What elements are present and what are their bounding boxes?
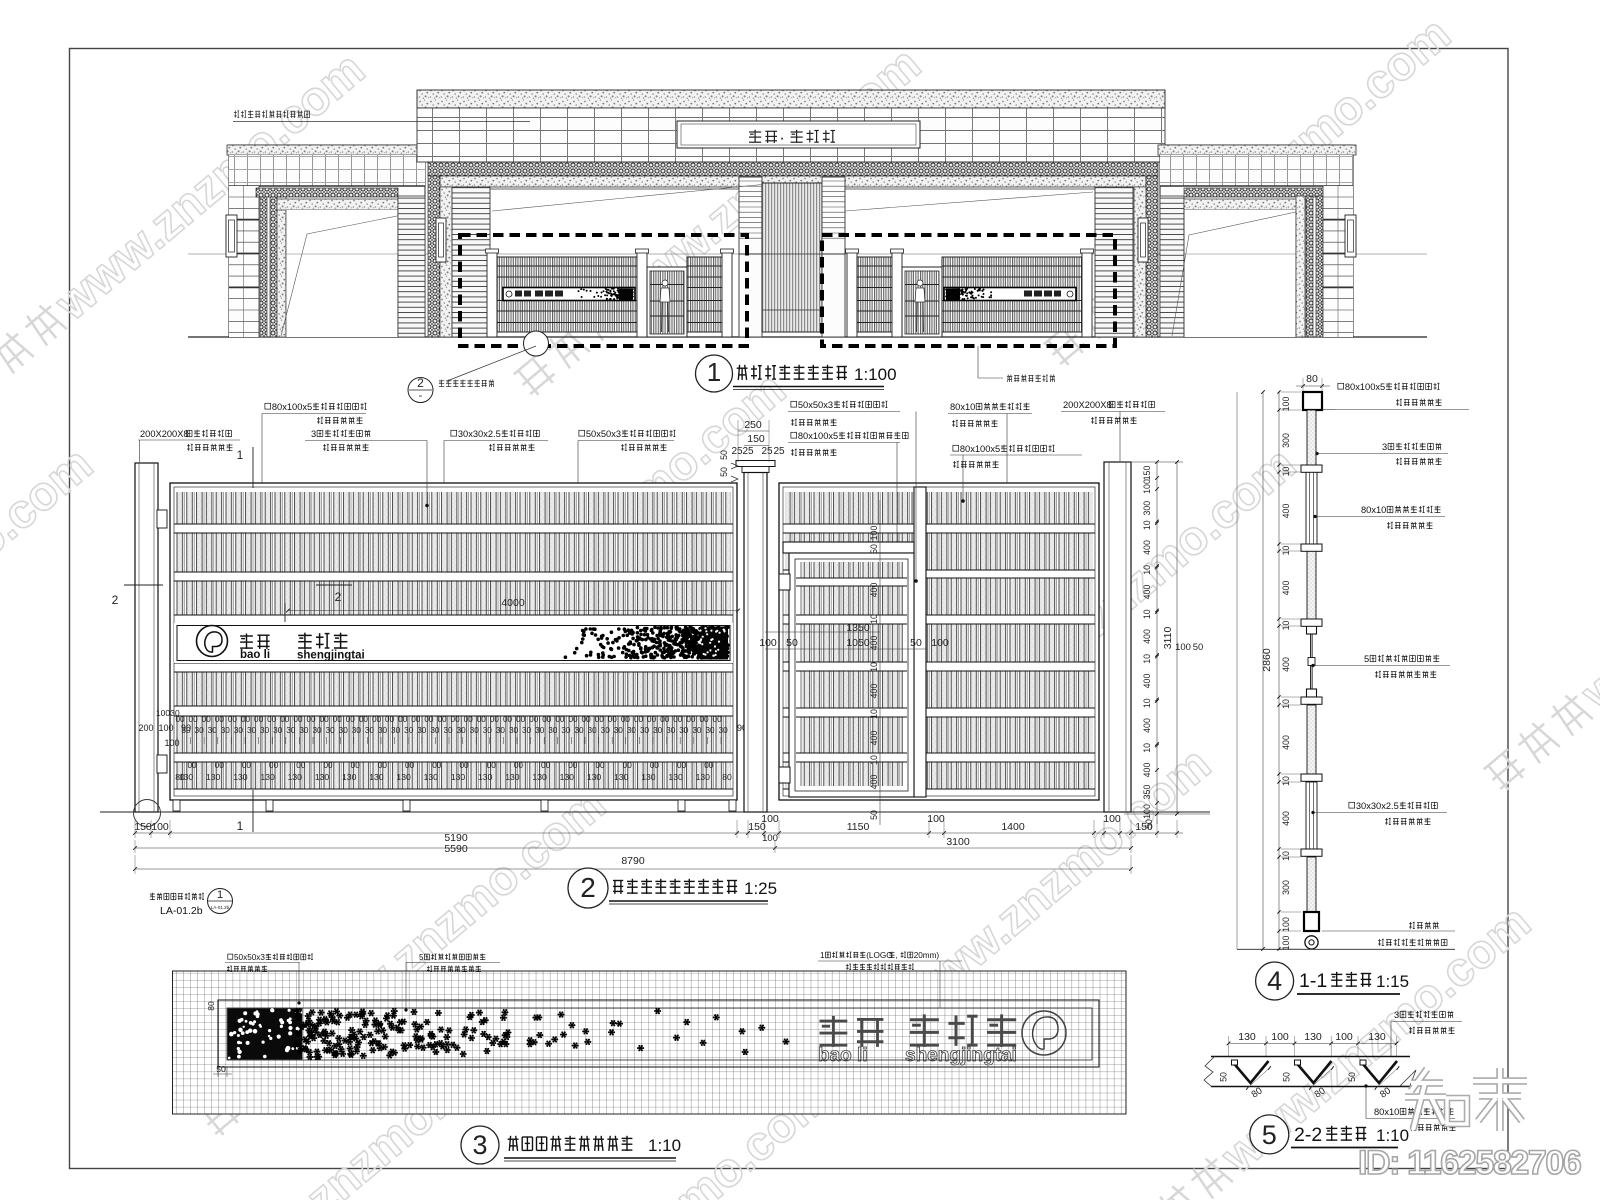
svg-text:00: 00 bbox=[280, 715, 290, 724]
svg-text:10: 10 bbox=[869, 755, 879, 765]
svg-text:30: 30 bbox=[653, 726, 663, 735]
svg-text:00: 00 bbox=[503, 715, 513, 724]
svg-text:(LOGO: (LOGO bbox=[866, 951, 892, 960]
svg-text:1: 1 bbox=[237, 448, 244, 462]
svg-text:30: 30 bbox=[365, 726, 375, 735]
svg-text:100: 100 bbox=[869, 526, 879, 541]
svg-text:00: 00 bbox=[595, 715, 605, 724]
svg-text:80: 80 bbox=[206, 1001, 216, 1011]
svg-text:10: 10 bbox=[1142, 520, 1152, 530]
svg-text:00: 00 bbox=[704, 761, 714, 770]
svg-text:00: 00 bbox=[568, 761, 578, 770]
svg-text:100: 100 bbox=[158, 723, 173, 733]
svg-text:30: 30 bbox=[221, 726, 231, 735]
svg-text:00: 00 bbox=[378, 761, 388, 770]
svg-text:25: 25 bbox=[773, 446, 785, 457]
svg-text:2: 2 bbox=[580, 872, 596, 903]
svg-text:00: 00 bbox=[516, 715, 526, 724]
svg-text:00: 00 bbox=[451, 715, 461, 724]
svg-text:00: 00 bbox=[542, 715, 552, 724]
svg-text:30: 30 bbox=[286, 726, 296, 735]
svg-text:30: 30 bbox=[208, 726, 218, 735]
svg-text:00: 00 bbox=[359, 715, 369, 724]
svg-text:130: 130 bbox=[478, 772, 493, 782]
svg-text:shengjingtai: shengjingtai bbox=[905, 1045, 1017, 1066]
svg-text:130: 130 bbox=[206, 772, 221, 782]
svg-text:130: 130 bbox=[396, 772, 411, 782]
svg-text:00: 00 bbox=[320, 715, 330, 724]
svg-text:30: 30 bbox=[614, 726, 624, 735]
svg-text:300: 300 bbox=[1281, 433, 1291, 448]
svg-text:5: 5 bbox=[419, 953, 424, 962]
svg-text:00: 00 bbox=[254, 715, 264, 724]
svg-text:bao li: bao li bbox=[240, 649, 270, 661]
svg-text:100: 100 bbox=[1175, 642, 1191, 653]
svg-text:130: 130 bbox=[369, 772, 384, 782]
svg-text:30: 30 bbox=[443, 726, 453, 735]
svg-text:00: 00 bbox=[267, 715, 277, 724]
svg-text:130: 130 bbox=[342, 772, 357, 782]
svg-text:350: 350 bbox=[1142, 785, 1152, 800]
svg-text:30: 30 bbox=[417, 726, 427, 735]
svg-text:30: 30 bbox=[574, 726, 584, 735]
svg-text:100: 100 bbox=[1103, 813, 1121, 825]
svg-text:00: 00 bbox=[582, 715, 592, 724]
svg-text:00: 00 bbox=[215, 761, 225, 770]
svg-text:00: 00 bbox=[459, 761, 469, 770]
svg-text:130: 130 bbox=[696, 772, 711, 782]
svg-text:30: 30 bbox=[627, 726, 637, 735]
svg-text:1150: 1150 bbox=[847, 821, 870, 833]
svg-text:100: 100 bbox=[761, 813, 779, 825]
svg-text:00: 00 bbox=[464, 715, 474, 724]
svg-text:30: 30 bbox=[679, 726, 689, 735]
svg-text:00: 00 bbox=[424, 715, 434, 724]
svg-text:1: 1 bbox=[237, 819, 244, 833]
svg-text:50: 50 bbox=[216, 1064, 226, 1074]
svg-text:50: 50 bbox=[719, 450, 729, 460]
svg-text:80: 80 bbox=[175, 772, 185, 782]
svg-text:400: 400 bbox=[1281, 735, 1291, 750]
svg-text:150: 150 bbox=[134, 821, 152, 833]
svg-text:50x50x3: 50x50x3 bbox=[234, 953, 265, 962]
svg-text:2: 2 bbox=[417, 376, 424, 390]
svg-text:1: 1 bbox=[217, 889, 223, 901]
svg-text:150: 150 bbox=[1142, 466, 1152, 481]
svg-text:50x50x3: 50x50x3 bbox=[586, 429, 621, 439]
svg-text:1: 1 bbox=[820, 951, 825, 960]
svg-text:80x100x5: 80x100x5 bbox=[1345, 382, 1385, 392]
svg-text:00: 00 bbox=[405, 761, 415, 770]
svg-text:400: 400 bbox=[869, 583, 879, 598]
svg-text:30: 30 bbox=[588, 726, 598, 735]
svg-text:200X200X8: 200X200X8 bbox=[140, 429, 189, 439]
svg-text:400: 400 bbox=[1281, 581, 1291, 596]
svg-text:30: 30 bbox=[483, 726, 493, 735]
svg-text:80x100x5: 80x100x5 bbox=[272, 402, 312, 412]
svg-text:30: 30 bbox=[170, 708, 180, 718]
svg-text:80x100x5: 80x100x5 bbox=[960, 444, 1000, 454]
svg-text:30: 30 bbox=[496, 726, 506, 735]
svg-text:130: 130 bbox=[505, 772, 520, 782]
svg-text:100: 100 bbox=[931, 637, 949, 649]
svg-text:3: 3 bbox=[1382, 442, 1387, 452]
svg-text:10: 10 bbox=[1281, 467, 1291, 477]
svg-text:10: 10 bbox=[869, 709, 879, 719]
svg-text:130: 130 bbox=[614, 772, 629, 782]
svg-text:30: 30 bbox=[404, 726, 414, 735]
svg-text:00: 00 bbox=[555, 715, 565, 724]
svg-text:400: 400 bbox=[1142, 718, 1152, 733]
svg-text:30: 30 bbox=[548, 726, 558, 735]
svg-text:80x10: 80x10 bbox=[950, 402, 975, 412]
svg-text:00: 00 bbox=[487, 761, 497, 770]
svg-text:100: 100 bbox=[927, 813, 945, 825]
svg-text:130: 130 bbox=[288, 772, 303, 782]
svg-text:25: 25 bbox=[742, 446, 754, 457]
svg-text:50: 50 bbox=[786, 637, 798, 649]
svg-text:30: 30 bbox=[378, 726, 388, 735]
svg-text:00: 00 bbox=[187, 761, 197, 770]
svg-text:·: · bbox=[779, 128, 785, 147]
svg-text:1: 1 bbox=[707, 357, 721, 387]
svg-text:30: 30 bbox=[640, 726, 650, 735]
svg-text:00: 00 bbox=[242, 761, 252, 770]
svg-text:30: 30 bbox=[234, 726, 244, 735]
svg-text:8790: 8790 bbox=[621, 855, 645, 867]
svg-text:400: 400 bbox=[869, 731, 879, 746]
svg-text:00: 00 bbox=[351, 761, 361, 770]
svg-text:30: 30 bbox=[299, 726, 309, 735]
svg-text:400: 400 bbox=[1142, 540, 1152, 555]
svg-text:400: 400 bbox=[1142, 629, 1152, 644]
svg-text:400: 400 bbox=[869, 684, 879, 699]
svg-text:130: 130 bbox=[233, 772, 248, 782]
svg-text:00: 00 bbox=[647, 715, 657, 724]
svg-text:30: 30 bbox=[247, 726, 257, 735]
svg-text:30: 30 bbox=[522, 726, 532, 735]
svg-text:130: 130 bbox=[260, 772, 275, 782]
svg-text:30: 30 bbox=[561, 726, 571, 735]
svg-text:10: 10 bbox=[1142, 565, 1152, 575]
svg-text:10: 10 bbox=[1142, 609, 1152, 619]
svg-text:00: 00 bbox=[595, 761, 605, 770]
svg-text:10: 10 bbox=[1281, 776, 1291, 786]
svg-text:50: 50 bbox=[1193, 642, 1204, 653]
svg-text:30: 30 bbox=[705, 726, 715, 735]
svg-text:100: 100 bbox=[1281, 917, 1291, 932]
svg-text:150: 150 bbox=[1135, 821, 1153, 833]
svg-text:00: 00 bbox=[296, 761, 306, 770]
svg-text:00: 00 bbox=[241, 715, 251, 724]
svg-text:400: 400 bbox=[1142, 763, 1152, 778]
svg-text:400: 400 bbox=[1142, 674, 1152, 689]
svg-text:00: 00 bbox=[623, 761, 633, 770]
svg-text:300: 300 bbox=[1281, 880, 1291, 895]
svg-text:,: , bbox=[895, 951, 897, 960]
svg-text:130: 130 bbox=[424, 772, 439, 782]
svg-text:100: 100 bbox=[1142, 479, 1152, 494]
svg-text:1400: 1400 bbox=[1001, 821, 1025, 833]
svg-text:10: 10 bbox=[869, 614, 879, 624]
svg-text:00: 00 bbox=[202, 715, 212, 724]
svg-text:30: 30 bbox=[719, 726, 729, 735]
svg-text:shengjingtai: shengjingtai bbox=[297, 650, 365, 662]
svg-text:30: 30 bbox=[601, 726, 611, 735]
svg-text:50: 50 bbox=[869, 810, 879, 820]
svg-text:10: 10 bbox=[1142, 743, 1152, 753]
svg-text:400: 400 bbox=[869, 636, 879, 651]
svg-text:00: 00 bbox=[608, 715, 618, 724]
svg-text:100: 100 bbox=[156, 708, 170, 718]
svg-text:3100: 3100 bbox=[946, 836, 970, 848]
svg-text:80: 80 bbox=[1306, 373, 1318, 385]
svg-text:100: 100 bbox=[1281, 397, 1291, 412]
svg-text:10: 10 bbox=[1281, 699, 1291, 709]
svg-text:90: 90 bbox=[181, 723, 191, 733]
svg-text:10: 10 bbox=[1281, 851, 1291, 861]
svg-text:00: 00 bbox=[398, 715, 408, 724]
svg-text:30: 30 bbox=[457, 726, 467, 735]
svg-text:130: 130 bbox=[560, 772, 575, 782]
svg-text:10: 10 bbox=[1142, 654, 1152, 664]
svg-text:130: 130 bbox=[532, 772, 547, 782]
svg-text:400: 400 bbox=[1142, 585, 1152, 600]
svg-text:10: 10 bbox=[869, 662, 879, 672]
svg-text:130: 130 bbox=[668, 772, 683, 782]
svg-text:3: 3 bbox=[472, 1130, 487, 1160]
svg-text:30: 30 bbox=[509, 726, 519, 735]
svg-text:10: 10 bbox=[1281, 546, 1291, 556]
svg-text:1350: 1350 bbox=[846, 622, 870, 634]
svg-text:20mm): 20mm) bbox=[914, 951, 940, 960]
svg-text:100: 100 bbox=[1281, 936, 1291, 951]
svg-text:50: 50 bbox=[869, 544, 879, 554]
svg-text:130: 130 bbox=[315, 772, 330, 782]
svg-text:30: 30 bbox=[273, 726, 283, 735]
svg-text:400: 400 bbox=[1281, 504, 1291, 519]
svg-text:3110: 3110 bbox=[1162, 627, 1174, 650]
svg-text:1050: 1050 bbox=[846, 637, 870, 649]
svg-text:bao li: bao li bbox=[818, 1045, 868, 1066]
svg-text:80x10: 80x10 bbox=[1361, 505, 1386, 515]
svg-text:2860: 2860 bbox=[1261, 648, 1273, 672]
svg-text:4000: 4000 bbox=[501, 597, 525, 609]
svg-text:00: 00 bbox=[437, 715, 447, 724]
svg-text:30: 30 bbox=[666, 726, 676, 735]
svg-text:5: 5 bbox=[1364, 654, 1369, 664]
svg-text:00: 00 bbox=[650, 761, 660, 770]
svg-text:00: 00 bbox=[385, 715, 395, 724]
svg-text:100: 100 bbox=[151, 821, 169, 833]
svg-text:100: 100 bbox=[164, 738, 179, 748]
svg-text:400: 400 bbox=[1281, 657, 1291, 672]
svg-text:30: 30 bbox=[535, 726, 545, 735]
svg-text:00: 00 bbox=[490, 715, 500, 724]
svg-text:00: 00 bbox=[306, 715, 316, 724]
svg-text:00: 00 bbox=[621, 715, 631, 724]
svg-text:30: 30 bbox=[260, 726, 270, 735]
svg-text:200X200X8: 200X200X8 bbox=[1063, 400, 1112, 410]
svg-text:00: 00 bbox=[699, 715, 709, 724]
svg-text:30: 30 bbox=[195, 726, 205, 735]
svg-text:130: 130 bbox=[451, 772, 466, 782]
svg-text:400: 400 bbox=[869, 775, 879, 790]
svg-text:30x30x2.5: 30x30x2.5 bbox=[1356, 801, 1399, 811]
svg-text:30: 30 bbox=[470, 726, 480, 735]
svg-text:2: 2 bbox=[335, 590, 342, 604]
svg-text:50: 50 bbox=[719, 467, 729, 477]
svg-text:30: 30 bbox=[692, 726, 702, 735]
svg-text:400: 400 bbox=[1281, 811, 1291, 826]
svg-text:LA-01.2b: LA-01.2b bbox=[211, 905, 230, 910]
svg-text:100: 100 bbox=[762, 833, 778, 844]
svg-text:00: 00 bbox=[568, 715, 578, 724]
svg-text:130: 130 bbox=[641, 772, 656, 782]
svg-text:50x50x3: 50x50x3 bbox=[798, 400, 833, 410]
svg-text:00: 00 bbox=[477, 715, 487, 724]
svg-text:30: 30 bbox=[352, 726, 362, 735]
svg-text:30: 30 bbox=[391, 726, 401, 735]
svg-text:50: 50 bbox=[910, 637, 922, 649]
svg-text:00: 00 bbox=[215, 715, 225, 724]
svg-text:00: 00 bbox=[228, 715, 238, 724]
svg-text:00: 00 bbox=[432, 761, 442, 770]
svg-text:00: 00 bbox=[686, 715, 696, 724]
svg-text:5590: 5590 bbox=[444, 843, 468, 855]
svg-text:00: 00 bbox=[269, 761, 279, 770]
svg-text:200: 200 bbox=[138, 723, 153, 733]
svg-text:80x100x5: 80x100x5 bbox=[798, 431, 838, 441]
svg-text:1:25: 1:25 bbox=[744, 879, 777, 898]
svg-text:00: 00 bbox=[677, 761, 687, 770]
svg-text:LA-01.2b: LA-01.2b bbox=[160, 905, 203, 917]
svg-text:30: 30 bbox=[339, 726, 349, 735]
svg-text:00: 00 bbox=[333, 715, 343, 724]
svg-text:00: 00 bbox=[411, 715, 421, 724]
svg-text:150: 150 bbox=[747, 433, 765, 445]
svg-text:00: 00 bbox=[541, 761, 551, 770]
svg-text:00: 00 bbox=[372, 715, 382, 724]
svg-text:250: 250 bbox=[744, 419, 762, 431]
svg-text:00: 00 bbox=[660, 715, 670, 724]
svg-text:00: 00 bbox=[634, 715, 644, 724]
svg-text:80: 80 bbox=[722, 772, 732, 782]
svg-text:00: 00 bbox=[713, 715, 723, 724]
svg-text:-: - bbox=[419, 390, 423, 402]
svg-text:00: 00 bbox=[514, 761, 524, 770]
svg-text:100: 100 bbox=[759, 637, 777, 649]
svg-text:30: 30 bbox=[312, 726, 322, 735]
svg-text:00: 00 bbox=[293, 715, 303, 724]
svg-text:1:10: 1:10 bbox=[648, 1136, 681, 1155]
svg-text:25: 25 bbox=[731, 446, 743, 457]
svg-text:00: 00 bbox=[529, 715, 539, 724]
svg-text:100: 100 bbox=[1142, 804, 1152, 819]
svg-text:300: 300 bbox=[1142, 501, 1152, 516]
svg-text:00: 00 bbox=[346, 715, 356, 724]
svg-text:3: 3 bbox=[311, 429, 316, 439]
svg-text:130: 130 bbox=[587, 772, 602, 782]
svg-text:2: 2 bbox=[112, 593, 119, 607]
svg-text:30x30x2.5: 30x30x2.5 bbox=[458, 429, 501, 439]
svg-text:00: 00 bbox=[673, 715, 683, 724]
svg-text:10: 10 bbox=[1142, 698, 1152, 708]
svg-text:10: 10 bbox=[1281, 621, 1291, 631]
svg-text:25: 25 bbox=[761, 446, 773, 457]
svg-text:30: 30 bbox=[326, 726, 336, 735]
svg-text:30: 30 bbox=[430, 726, 440, 735]
svg-text:00: 00 bbox=[323, 761, 333, 770]
svg-text:1:100: 1:100 bbox=[854, 365, 897, 384]
